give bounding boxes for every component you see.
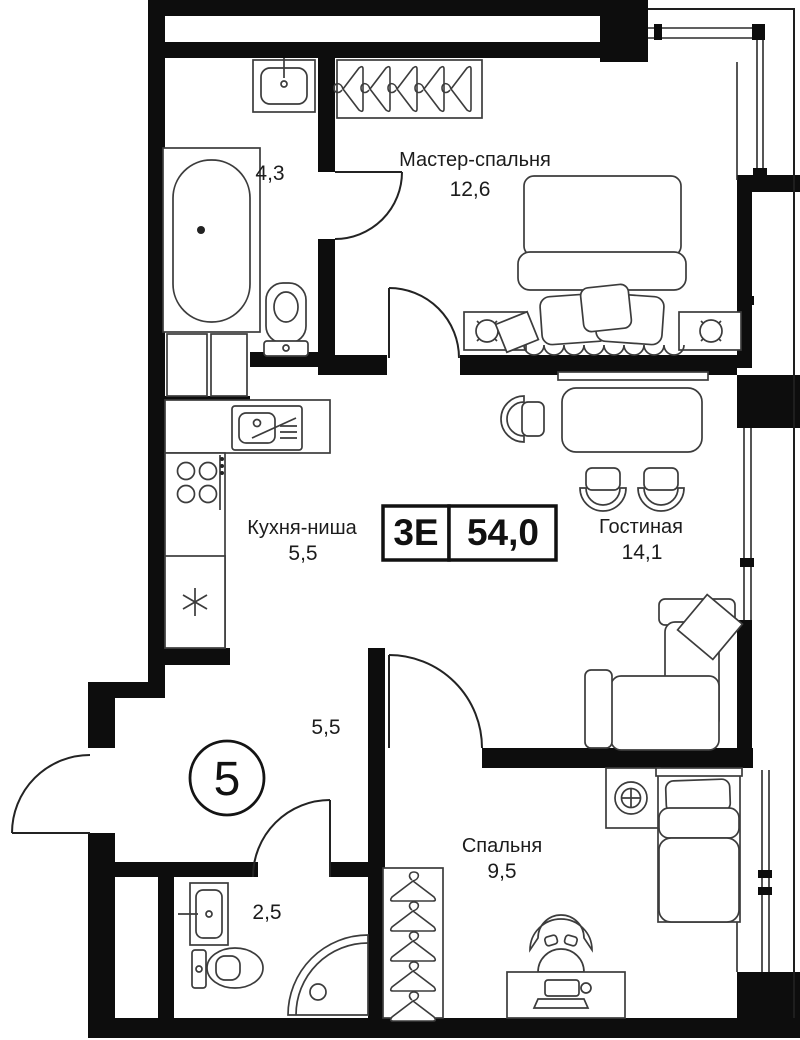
toilet <box>264 283 308 356</box>
master-wardrobe-hangers <box>334 60 482 118</box>
single-bed <box>656 768 742 922</box>
room-area-hallway: 5,5 <box>311 716 340 739</box>
unit-number-badge: 5 <box>190 741 264 815</box>
floor-plan: Мастер-спальня 12,6 4,3 Кухня-ниша 5,5 Г… <box>0 0 800 1040</box>
room-label-master: Мастер-спальня <box>399 149 551 171</box>
chair <box>501 396 544 442</box>
monitor-icon <box>545 980 579 996</box>
office-chair-back <box>530 915 592 950</box>
chair <box>638 468 684 511</box>
bathroom-sink <box>253 58 315 112</box>
apartment-info-box: 3Е 54,0 <box>383 506 556 560</box>
corner-shower <box>288 935 368 1015</box>
room-label-kitchen: Кухня-ниша <box>247 517 357 539</box>
lamp-icon <box>700 320 722 342</box>
apartment-total-area: 54,0 <box>467 512 539 553</box>
room-label-bedroom: Спальня <box>462 835 542 857</box>
apartment-type: 3Е <box>393 512 438 553</box>
console-shelf <box>558 372 708 380</box>
room-area-kitchen: 5,5 <box>288 542 317 565</box>
dining-table <box>562 388 702 452</box>
bathroom-main-door <box>335 172 402 239</box>
master-bedroom-furniture <box>334 60 741 355</box>
double-bed <box>518 176 686 355</box>
floor-plan-page: Мастер-спальня 12,6 4,3 Кухня-ниша 5,5 Г… <box>0 0 800 1040</box>
desk-with-computer <box>507 915 625 1018</box>
office-chair-seat <box>538 949 584 972</box>
bedroom-wardrobe-hangers <box>383 868 443 1021</box>
bathroom-small-door <box>253 800 330 877</box>
bedroom-furniture <box>383 768 742 1021</box>
kitchen-sink <box>232 406 302 450</box>
corner-sofa <box>585 595 742 750</box>
pillow <box>580 284 632 333</box>
lamp-icon <box>476 320 498 342</box>
bathroom-main-fixtures <box>163 58 315 396</box>
room-label-living: Гостиная <box>599 516 683 538</box>
fridge <box>165 556 225 648</box>
bedroom-door <box>389 655 482 748</box>
room-area-bedroom: 9,5 <box>487 860 516 883</box>
small-toilet <box>192 948 263 988</box>
chair <box>580 468 626 511</box>
bedside-table <box>606 768 660 828</box>
unit-number: 5 <box>214 753 241 806</box>
laundry-units <box>167 334 247 396</box>
room-area-bathroom-main: 4,3 <box>255 162 284 185</box>
room-area-master: 12,6 <box>450 178 491 201</box>
entrance-door <box>12 755 90 833</box>
room-area-living: 14,1 <box>622 541 663 564</box>
small-sink <box>178 883 228 945</box>
keyboard-icon <box>534 999 588 1008</box>
headboard-tufting <box>524 345 684 355</box>
room-area-bathroom-small: 2,5 <box>252 901 281 924</box>
master-bedroom-door <box>389 288 459 358</box>
bathtub <box>163 148 260 332</box>
